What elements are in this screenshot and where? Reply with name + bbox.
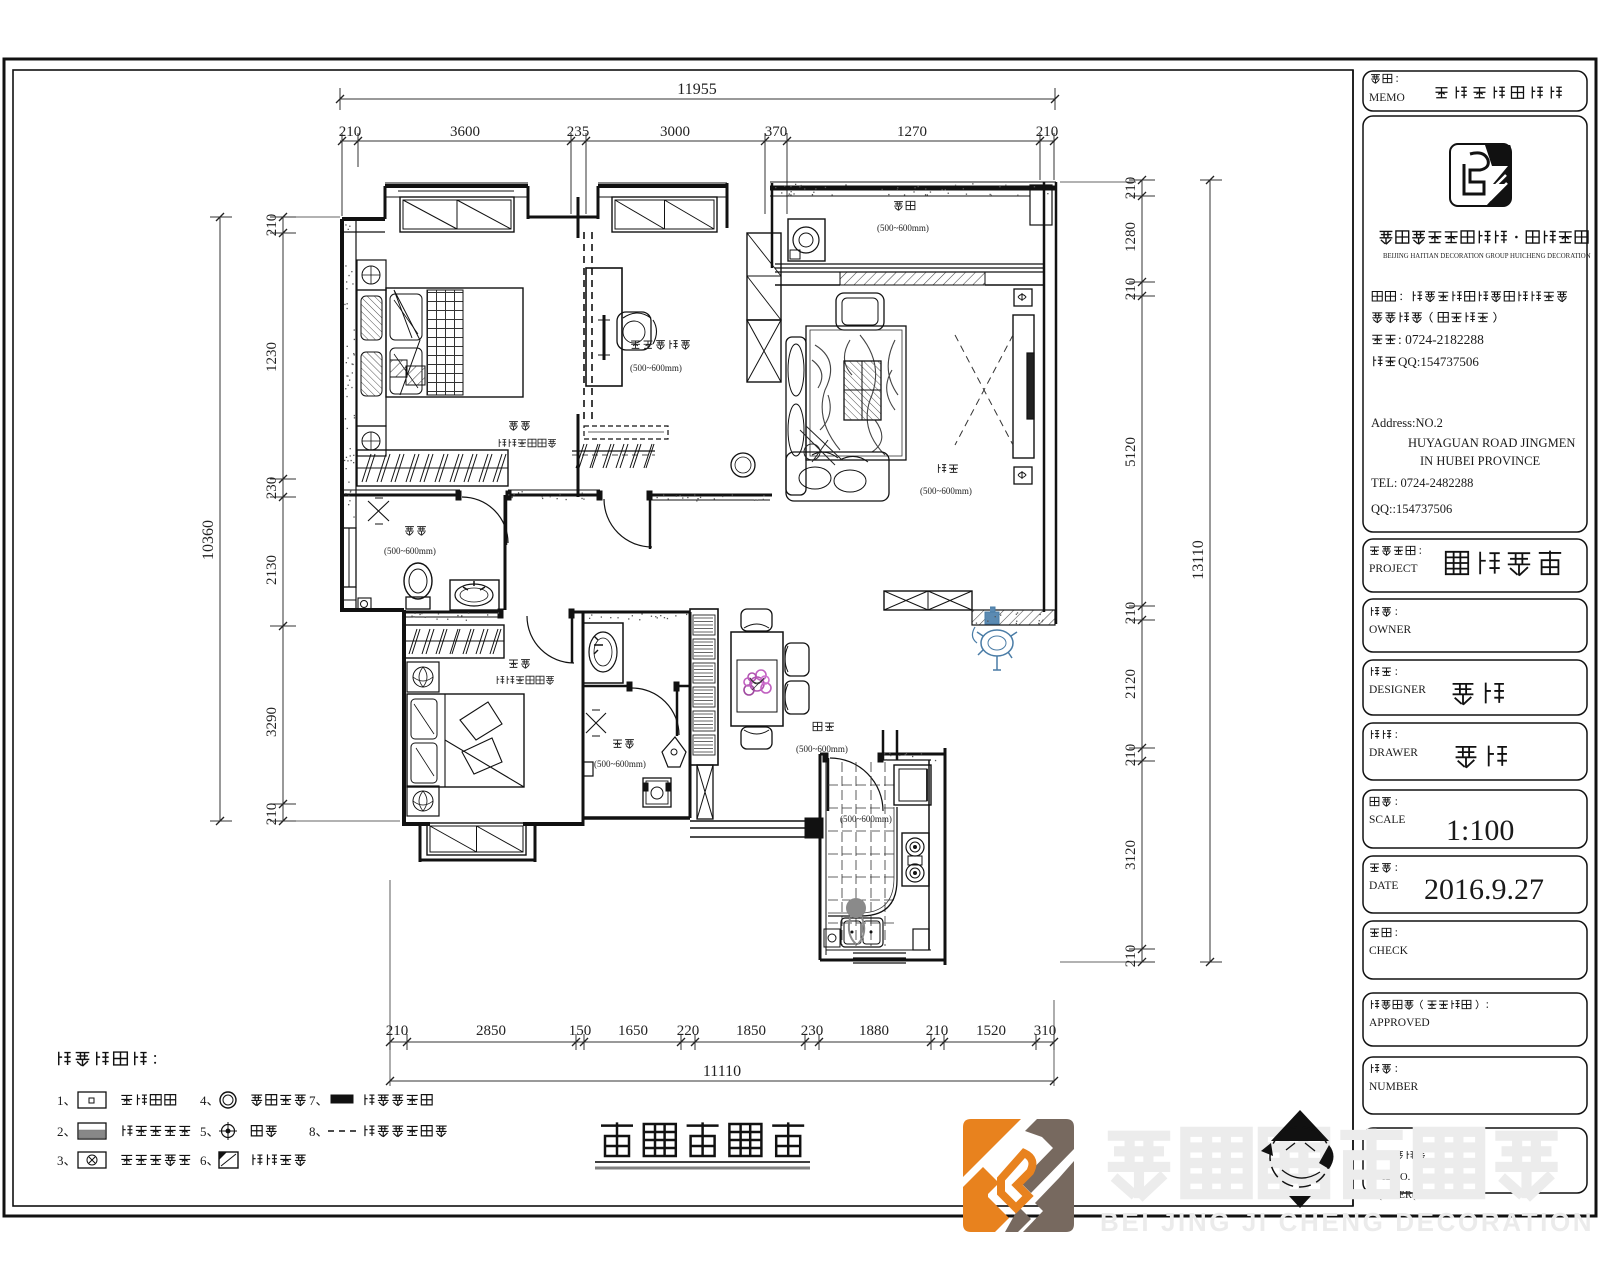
svg-text:8、: 8、	[309, 1124, 329, 1139]
svg-text:310: 310	[1034, 1023, 1057, 1039]
svg-text:TEL: 0724-2482288: TEL: 0724-2482288	[1371, 476, 1473, 490]
svg-text:2120: 2120	[1123, 669, 1139, 699]
svg-text:2、: 2、	[57, 1124, 77, 1139]
svg-text:DRAWER: DRAWER	[1369, 747, 1418, 759]
svg-text:235: 235	[567, 124, 590, 140]
svg-text:1850: 1850	[736, 1023, 766, 1039]
svg-text:HUYAGUAN ROAD JINGMEN: HUYAGUAN ROAD JINGMEN	[1408, 436, 1575, 450]
svg-text:1230: 1230	[264, 342, 280, 372]
svg-text:5120: 5120	[1123, 437, 1139, 467]
svg-text:NUMBER: NUMBER	[1369, 1081, 1419, 1093]
svg-text:1520: 1520	[976, 1023, 1006, 1039]
svg-text:1270: 1270	[897, 124, 927, 140]
svg-text:210: 210	[264, 803, 280, 826]
svg-text:10360: 10360	[200, 520, 217, 560]
svg-text:7、: 7、	[309, 1093, 329, 1108]
svg-text:210: 210	[1123, 744, 1139, 767]
svg-text:QQ::154737506: QQ::154737506	[1371, 502, 1452, 516]
svg-text:(500~600mm): (500~600mm)	[920, 486, 972, 496]
svg-text:CHECK: CHECK	[1369, 945, 1409, 957]
svg-text:QQ:154737506: QQ:154737506	[1398, 354, 1479, 369]
svg-text:5、: 5、	[200, 1124, 220, 1139]
svg-text:2130: 2130	[264, 555, 280, 585]
svg-text:1280: 1280	[1123, 222, 1139, 252]
svg-text:3600: 3600	[450, 124, 480, 140]
svg-text:(500~600mm): (500~600mm)	[796, 744, 848, 754]
svg-text:1:100: 1:100	[1446, 814, 1514, 847]
svg-text:Address:NO.2: Address:NO.2	[1371, 416, 1443, 430]
svg-text:210: 210	[1036, 124, 1059, 140]
svg-text:230: 230	[264, 477, 280, 500]
svg-text:DESIGNER: DESIGNER	[1369, 684, 1426, 696]
svg-text:210: 210	[1123, 278, 1139, 301]
svg-text:13110: 13110	[1190, 540, 1207, 579]
svg-text:OWNER: OWNER	[1369, 624, 1411, 636]
svg-text:2850: 2850	[476, 1023, 506, 1039]
svg-text:230: 230	[801, 1023, 824, 1039]
svg-text:DATE: DATE	[1369, 880, 1398, 892]
svg-text:4、: 4、	[200, 1093, 220, 1108]
svg-text:11955: 11955	[677, 81, 716, 98]
svg-text:BEI JING JI CHENG DECORATION: BEI JING JI CHENG DECORATION	[1100, 1207, 1594, 1237]
svg-text:370: 370	[765, 124, 788, 140]
svg-text:210: 210	[339, 124, 362, 140]
svg-text:1、: 1、	[57, 1093, 77, 1108]
svg-text:SCALE: SCALE	[1369, 814, 1405, 826]
svg-text:3、: 3、	[57, 1153, 77, 1168]
svg-text:IN HUBEI PROVINCE: IN HUBEI PROVINCE	[1420, 454, 1541, 468]
svg-text:(500~600mm): (500~600mm)	[594, 759, 646, 769]
svg-text:1880: 1880	[859, 1023, 889, 1039]
svg-text:(500~600mm): (500~600mm)	[840, 814, 892, 824]
svg-text:6、: 6、	[200, 1153, 220, 1168]
svg-text:: 0724-2182288: : 0724-2182288	[1398, 332, 1484, 347]
svg-text:APPROVED: APPROVED	[1369, 1017, 1430, 1029]
svg-text:PROJECT: PROJECT	[1369, 563, 1418, 575]
svg-text:(500~600mm): (500~600mm)	[877, 223, 929, 233]
svg-text:210: 210	[386, 1023, 409, 1039]
svg-text:210: 210	[264, 214, 280, 237]
svg-text:2016.9.27: 2016.9.27	[1424, 873, 1544, 906]
svg-text:11110: 11110	[703, 1063, 741, 1080]
svg-text:150: 150	[569, 1023, 592, 1039]
svg-text:MEMO: MEMO	[1369, 92, 1405, 104]
svg-text:3290: 3290	[264, 707, 280, 737]
svg-text:(500~600mm): (500~600mm)	[384, 546, 436, 556]
svg-text:(500~600mm): (500~600mm)	[630, 363, 682, 373]
svg-text:BEIJING HAITIAN DECORATION: BEIJING HAITIAN DECORATION GROUP HUICHEN…	[1383, 253, 1591, 260]
svg-text:220: 220	[677, 1023, 700, 1039]
svg-text:3000: 3000	[660, 124, 690, 140]
svg-text:210: 210	[1123, 177, 1139, 200]
svg-text:210: 210	[1123, 602, 1139, 625]
svg-text:210: 210	[1123, 945, 1139, 968]
svg-text:3120: 3120	[1123, 840, 1139, 870]
svg-text:1650: 1650	[618, 1023, 648, 1039]
svg-text:210: 210	[926, 1023, 949, 1039]
